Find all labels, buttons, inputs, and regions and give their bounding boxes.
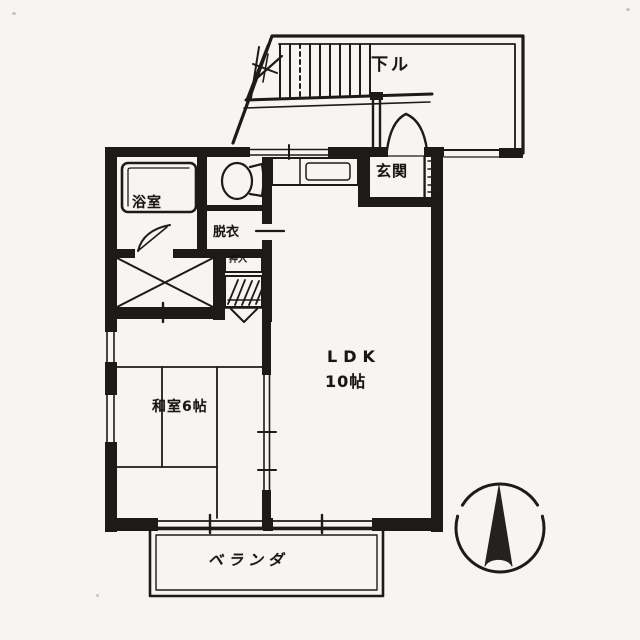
stairs-label: 下ル: [371, 57, 411, 74]
ldk-label: LDK: [327, 349, 381, 365]
kitchen-window: [250, 145, 328, 159]
bathroom-label: 浴室: [132, 196, 162, 210]
entrance-label: 玄関: [376, 164, 408, 179]
closet-label: 押入: [229, 256, 247, 265]
scan-speck: [12, 12, 16, 15]
scan-speck: [96, 594, 99, 597]
veranda-label: ベランダ: [208, 553, 288, 568]
japanese-room-label: 和室6帖: [152, 400, 208, 414]
closet-x-icon: [117, 258, 213, 307]
bath-door-arc-icon: [138, 225, 170, 251]
scan-speck: [626, 8, 630, 11]
north-compass-icon: [456, 484, 544, 572]
entry-door-arc-icon: [387, 114, 427, 150]
tatami-grid-icon: [117, 367, 262, 518]
toilet-icon: [222, 163, 264, 199]
floorplan-page: 下ル 玄関 浴室 脱衣 押入 LDK 10帖 和室6帖 ベランダ: [0, 0, 640, 640]
sliding-doors: [258, 375, 276, 490]
floorplan-drawing: [0, 0, 640, 640]
dressing-room-label: 脱衣: [213, 226, 239, 239]
ldk-size-label: 10帖: [325, 374, 366, 390]
kitchen-sink-icon: [272, 158, 358, 185]
